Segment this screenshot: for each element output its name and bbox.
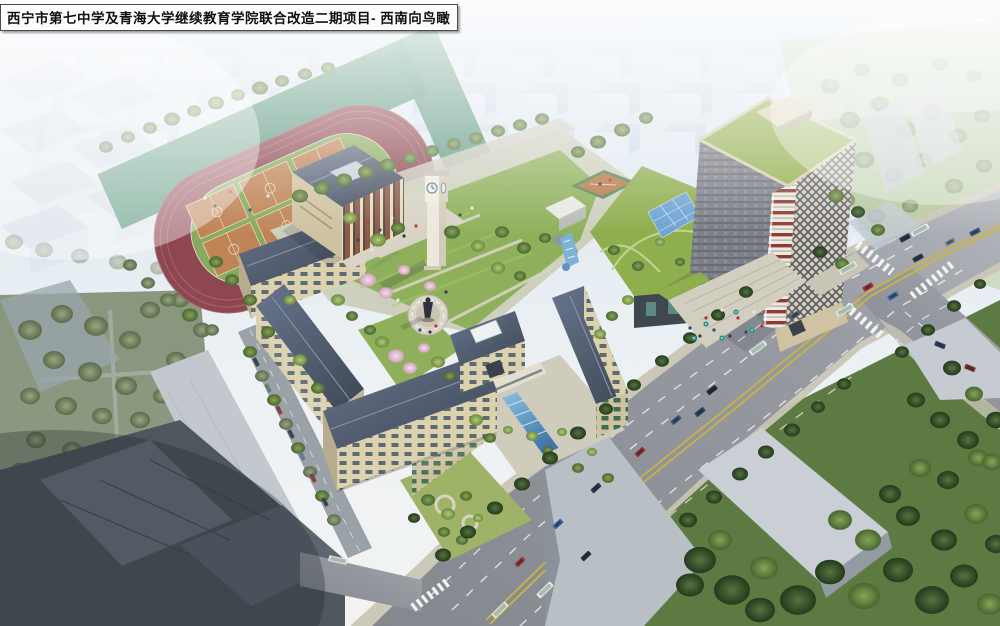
rendering-canvas: 西宁市第七中学及青海大学继续教育学院联合改造二期项目- 西南向鸟瞰 bbox=[0, 0, 1000, 626]
title-text: 西宁市第七中学及青海大学继续教育学院联合改造二期项目- 西南向鸟瞰 bbox=[7, 11, 450, 26]
aerial-rendering bbox=[0, 0, 1000, 626]
title-bar: 西宁市第七中学及青海大学继续教育学院联合改造二期项目- 西南向鸟瞰 bbox=[0, 4, 458, 31]
